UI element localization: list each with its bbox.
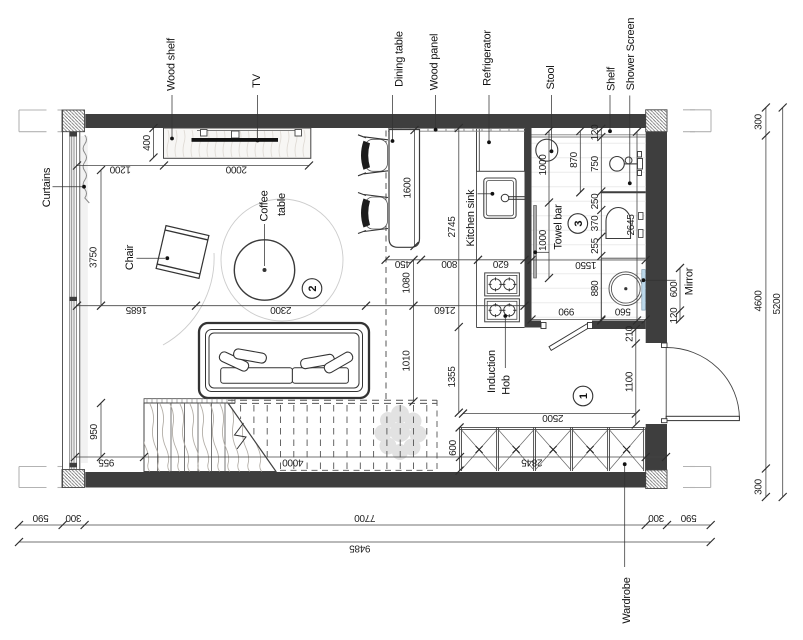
svg-text:table: table — [276, 193, 288, 216]
svg-text:210: 210 — [625, 325, 636, 342]
svg-text:590: 590 — [32, 512, 49, 523]
svg-text:Stool: Stool — [545, 65, 557, 89]
svg-text:Shelf: Shelf — [606, 66, 618, 91]
svg-text:TV: TV — [251, 73, 263, 88]
svg-text:9485: 9485 — [349, 542, 371, 553]
svg-text:Chair: Chair — [124, 244, 136, 270]
svg-text:Curtains: Curtains — [41, 167, 53, 207]
svg-text:400: 400 — [142, 134, 153, 151]
svg-text:250: 250 — [590, 193, 601, 210]
svg-text:1080: 1080 — [402, 272, 413, 294]
svg-text:120: 120 — [590, 124, 601, 141]
svg-text:255: 255 — [590, 237, 601, 254]
svg-text:Wardrobe: Wardrobe — [621, 577, 633, 623]
svg-text:1600: 1600 — [402, 177, 413, 199]
svg-text:Hob: Hob — [500, 375, 512, 395]
svg-text:750: 750 — [590, 155, 601, 172]
svg-text:1550: 1550 — [575, 259, 597, 270]
svg-text:2500: 2500 — [542, 412, 564, 423]
svg-text:1000: 1000 — [538, 154, 549, 176]
svg-text:990: 990 — [558, 305, 575, 316]
svg-text:870: 870 — [569, 151, 580, 168]
svg-text:300: 300 — [754, 113, 765, 130]
svg-text:300: 300 — [754, 478, 765, 495]
svg-text:1000: 1000 — [538, 229, 549, 251]
svg-text:Kitchen sink: Kitchen sink — [465, 189, 477, 247]
svg-text:2000: 2000 — [225, 164, 247, 175]
svg-text:Wood shelf: Wood shelf — [166, 37, 178, 91]
svg-text:120: 120 — [669, 307, 680, 324]
svg-text:Shower Screen: Shower Screen — [625, 18, 637, 91]
svg-text:600: 600 — [669, 281, 680, 298]
svg-text:1685: 1685 — [125, 304, 147, 315]
svg-text:620: 620 — [492, 258, 509, 269]
svg-text:Wood panel: Wood panel — [429, 34, 441, 91]
svg-text:Refrigerator: Refrigerator — [482, 30, 494, 86]
svg-text:300: 300 — [648, 512, 665, 523]
svg-text:590: 590 — [680, 512, 697, 523]
svg-text:Induction: Induction — [486, 350, 498, 393]
svg-text:300: 300 — [65, 512, 82, 523]
svg-text:2: 2 — [307, 285, 319, 291]
svg-text:370: 370 — [590, 215, 601, 232]
svg-text:2300: 2300 — [270, 304, 292, 315]
svg-text:1355: 1355 — [447, 366, 458, 388]
svg-text:450: 450 — [394, 258, 411, 269]
svg-text:2645: 2645 — [626, 214, 637, 236]
svg-text:3: 3 — [573, 220, 585, 226]
svg-text:4600: 4600 — [754, 290, 765, 312]
svg-text:1010: 1010 — [402, 350, 413, 372]
svg-text:2845: 2845 — [521, 456, 543, 467]
svg-text:Mirror: Mirror — [684, 267, 696, 295]
svg-text:2745: 2745 — [447, 216, 458, 238]
svg-text:1: 1 — [578, 393, 590, 399]
svg-text:560: 560 — [614, 305, 631, 316]
svg-text:1100: 1100 — [625, 371, 636, 392]
svg-text:3750: 3750 — [89, 246, 100, 268]
svg-text:800: 800 — [441, 258, 458, 269]
svg-text:Dining table: Dining table — [394, 31, 406, 87]
svg-text:2160: 2160 — [434, 304, 456, 315]
svg-text:880: 880 — [590, 280, 601, 297]
svg-text:Coffee: Coffee — [259, 190, 271, 221]
svg-text:4000: 4000 — [282, 456, 304, 467]
svg-text:600: 600 — [448, 439, 459, 456]
svg-text:1200: 1200 — [109, 164, 131, 175]
svg-text:950: 950 — [89, 423, 100, 440]
svg-text:Towel bar: Towel bar — [553, 204, 565, 250]
svg-text:7700: 7700 — [354, 512, 376, 523]
svg-text:5200: 5200 — [772, 293, 783, 315]
